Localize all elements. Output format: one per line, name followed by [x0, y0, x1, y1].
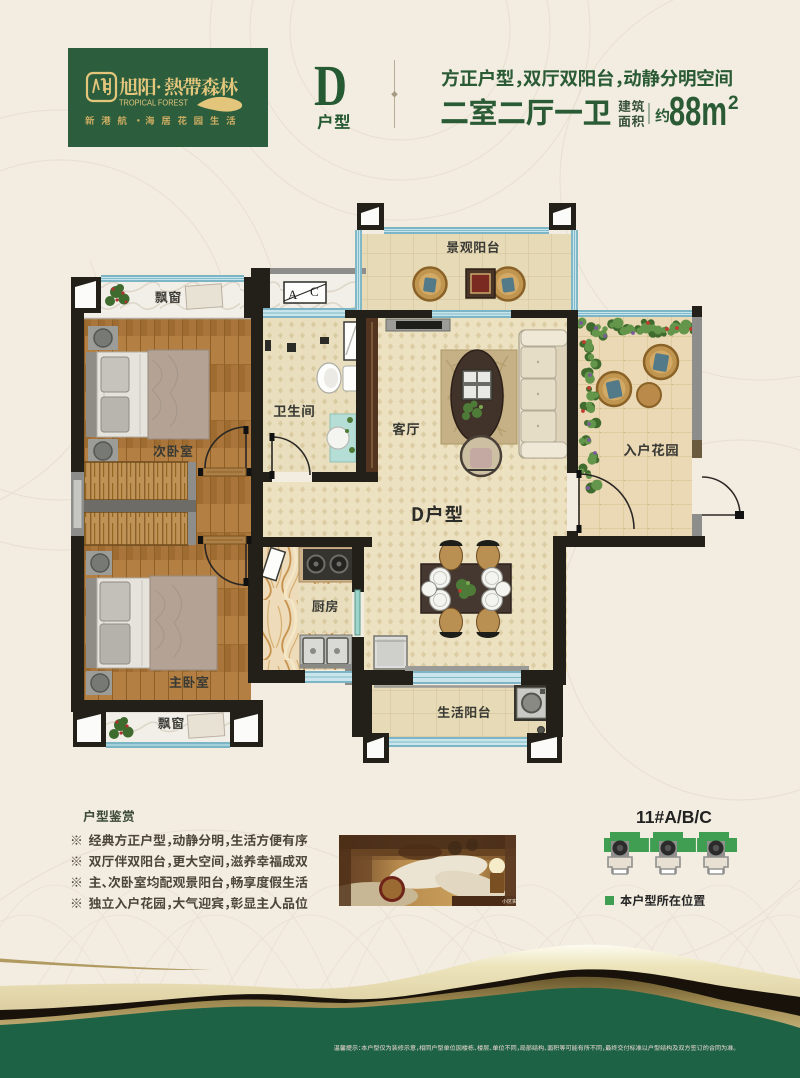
svg-text:88m: 88m — [669, 88, 727, 134]
svg-text:A: A — [288, 287, 298, 302]
svg-text:11#A/B/C: 11#A/B/C — [636, 807, 712, 827]
svg-text:TROPICAL FOREST: TROPICAL FOREST — [119, 99, 188, 108]
svg-text:D: D — [314, 53, 347, 118]
svg-text:C: C — [310, 284, 319, 299]
svg-text:2: 2 — [728, 93, 739, 114]
